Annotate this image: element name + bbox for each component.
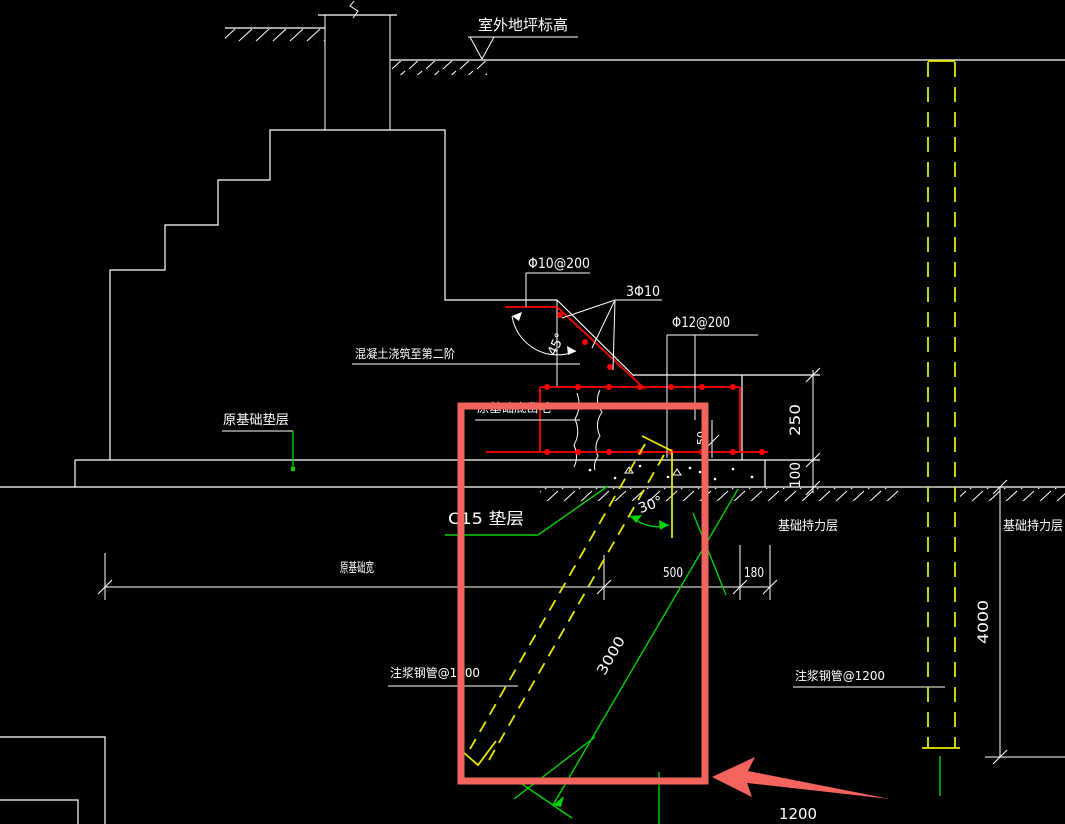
rebar-section-dots	[544, 312, 765, 455]
sloped-pour-face	[557, 300, 634, 376]
dim-4000: 4000	[976, 600, 992, 644]
level-symbol: 室外地坪标高	[468, 16, 578, 59]
dim-250: 250	[788, 404, 804, 436]
main-bars-label: Φ12@200	[672, 315, 730, 331]
drawing-canvas: 室外地坪标高	[0, 0, 1065, 824]
bearing-layer-label-right: 基础持力层	[1003, 519, 1063, 534]
dim-3000: 3000	[594, 634, 629, 678]
bearing-layer-label-left: 基础持力层	[778, 519, 838, 534]
annotation-arrow	[712, 757, 890, 799]
grout-pipe-label-left: 注浆钢管@1200	[390, 665, 480, 680]
grout-pipes-vertical	[922, 61, 960, 748]
ground-surface	[225, 28, 1065, 75]
pour-note: 混凝土浇筑至第二阶	[355, 346, 455, 361]
grout-pipe-label-right: 注浆钢管@1200	[795, 668, 885, 683]
angle-45-arc	[512, 316, 576, 355]
pipe-bottom-cap	[463, 741, 496, 765]
dimensions: 250 100 50 原基础宽 500 180 4000 1200	[98, 368, 1065, 823]
dim-500: 500	[663, 566, 683, 581]
foundation-outline	[0, 130, 1065, 501]
orig-cushion-label: 原基础垫层	[223, 412, 289, 428]
dim-orig-width: 原基础宽	[340, 560, 374, 576]
stirrup-label: Φ10@200	[528, 256, 590, 272]
dim-180: 180	[744, 566, 764, 581]
rebar-annotations: Φ10@200 3Φ10 Φ12@200 45°	[512, 256, 758, 458]
wall-section	[318, 1, 397, 130]
dim-3000-line	[553, 489, 738, 805]
dim-100: 100	[788, 462, 804, 488]
dim-1200: 1200	[779, 805, 817, 823]
bottom-left-structure	[0, 737, 105, 824]
concrete-dots	[589, 465, 754, 481]
highlight-rectangle	[461, 406, 705, 781]
ground-level-label: 室外地坪标高	[478, 16, 568, 34]
slope-bars-label: 3Φ10	[626, 284, 660, 300]
chiseled-edge	[594, 390, 602, 470]
